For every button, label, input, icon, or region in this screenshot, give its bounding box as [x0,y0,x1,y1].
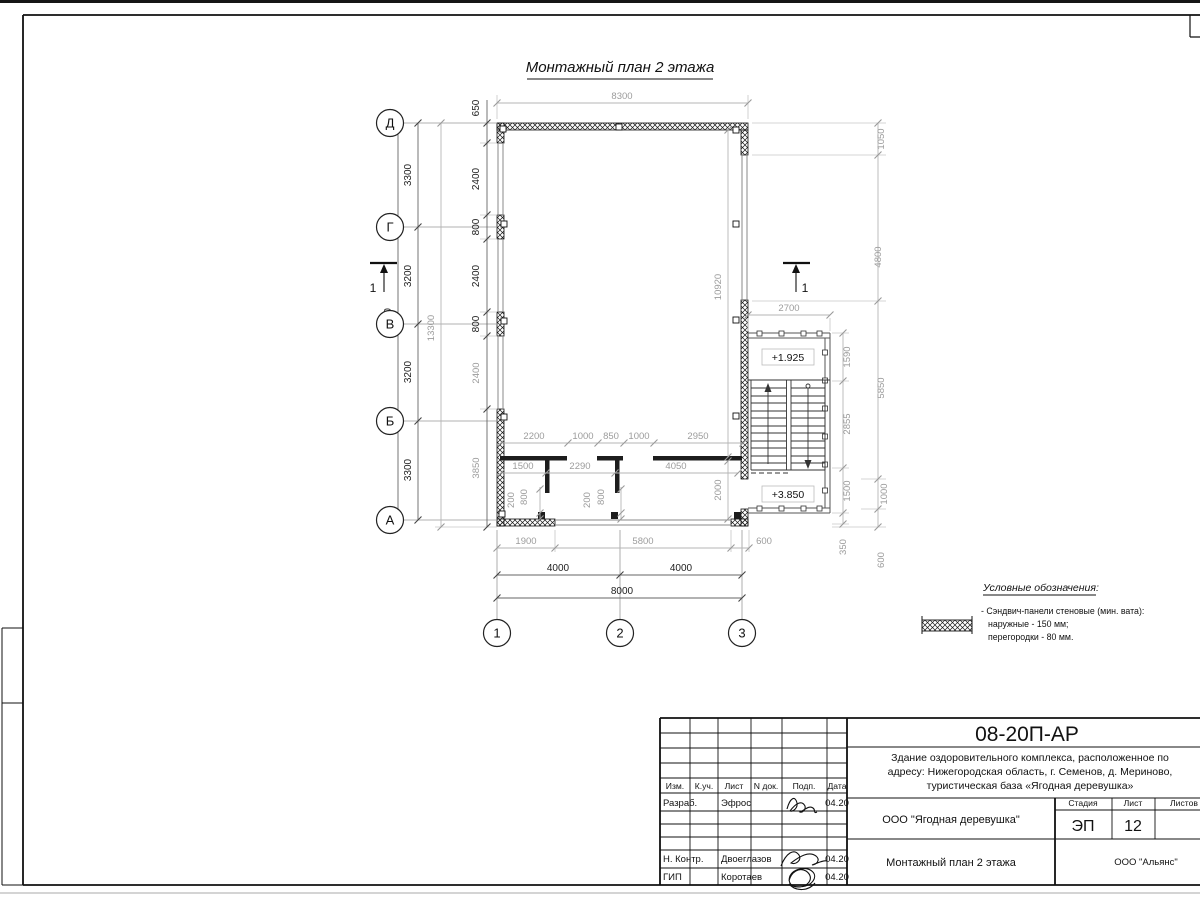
dim-label: 3300 [403,458,414,481]
plan-title: Монтажный план 2 этажа [526,59,715,79]
title-block: 08-20П-АР Здание оздоровительного компле… [660,718,1200,890]
dim-label: 8300 [611,91,632,102]
tb-col-header: Дата [827,781,846,791]
partition-v1 [545,460,550,493]
wall-east-lower [741,509,748,526]
dim-label: 600 [876,552,887,568]
dim-label: 800 [596,489,607,505]
signature-razrab [787,798,817,812]
wall-top [497,123,748,130]
dim-label: 1900 [515,536,536,547]
dim-label: 3850 [471,457,482,478]
dim-label: 1050 [876,128,887,149]
tb-row-date: 04.20 [825,798,849,809]
axis-row-label: Д [386,116,395,131]
dim-label: 800 [519,489,530,505]
dim-label: 850 [603,431,619,442]
dim-label: 4800 [873,246,884,267]
legend-line: наружные - 150 мм; [988,619,1068,629]
tb-row-role: ГИП [663,872,682,883]
section-label: 1 [370,281,377,295]
sheet-label: Лист [1124,798,1143,808]
door-jamb-3 [734,512,741,519]
dim-label: 1000 [628,431,649,442]
dim-label: 10920 [713,274,724,300]
wall-left-lower [497,409,504,526]
section-arrow-icon [792,264,800,273]
dim-label: 200 [506,492,517,508]
dim-label: 800 [471,218,482,235]
tb-row-role: Н. Контр. [663,854,703,865]
tb-row-name: Коротаев [721,872,762,883]
dim-ticks-black [395,120,746,602]
doc-number: 08-20П-АР [975,723,1079,746]
dim-label: 1500 [512,461,533,472]
dimension-lines-black [398,100,742,598]
dim-label: 2855 [842,413,853,434]
wall-bottom-left [497,519,555,526]
stairwell: +1.925 +3.850 [748,331,830,513]
dim-label: 350 [838,539,849,555]
wall-east-mid [741,300,748,479]
dim-label: 3300 [403,163,414,186]
section-arrow-icon [380,264,388,273]
dim-label: 2700 [778,303,799,314]
sheets-label: Листов [1170,798,1198,808]
dim-label: 1000 [572,431,593,442]
axis-col-label: 2 [616,626,623,641]
project-line: адресу: Нижегородская область, г. Семено… [888,766,1173,778]
dim-label: 3200 [403,264,414,287]
tb-row-date: 04.20 [825,854,849,865]
axis-row-label: В [386,317,395,332]
dim-label: 2000 [713,479,724,500]
dim-label: 5800 [632,536,653,547]
section-marks: 1 1 [370,263,810,295]
dim-label: 1000 [879,483,890,504]
sandwich-panel-symbol [922,620,972,631]
dimension-lines-gray [441,103,878,548]
plan-title-text: Монтажный план 2 этажа [526,59,715,76]
dim-label: 8000 [611,586,634,597]
dim-label: 2950 [687,431,708,442]
axis-row-label: Г [386,220,393,235]
tb-row-name: Двоеглазов [721,854,772,865]
floor-plan-walls [497,123,748,526]
project-line: Здание оздоровительного комплекса, распо… [891,752,1169,764]
legend-line: перегородки - 80 мм. [988,632,1073,642]
dim-label: 650 [471,99,482,116]
dim-label: 1590 [842,346,853,367]
window-left [498,143,503,409]
axis-col-label: 1 [493,626,500,641]
dim-label: 2400 [471,264,482,287]
legend-line: - Сэндвич-панели стеновые (мин. вата): [981,606,1144,616]
partition-v2 [615,460,620,493]
tb-row-name: Эфрос [721,798,751,809]
windows [498,143,747,525]
drawing-sheet: Монтажный план 2 этажа [0,0,1200,900]
dim-label: 600 [756,536,772,547]
sheet-title: Монтажный план 2 этажа [886,857,1017,869]
door-jamb-2 [611,512,618,519]
dim-label: 2290 [569,461,590,472]
client-name: ООО "Ягодная деревушка" [882,814,1020,826]
tb-col-header: Подп. [793,781,816,791]
tb-col-header: К.уч. [695,781,714,791]
tb-col-header: Лист [725,781,744,791]
contractor-name: ООО "Альянс" [1114,857,1178,868]
dim-label: 2400 [471,167,482,190]
dim-label: 200 [582,492,593,508]
axis-col-label: 3 [738,626,745,641]
dim-label: 2200 [523,431,544,442]
wall-east-corner [741,130,748,155]
stage-value: ЭП [1072,818,1095,835]
section-label: 1 [802,281,809,295]
dim-label: 3200 [403,360,414,383]
down-arrowhead-icon [805,460,812,469]
dim-label: 4000 [670,563,693,574]
axis-row-label: А [386,513,395,528]
stair-flights [748,380,830,473]
signature-gip [789,869,815,890]
stage-label: Стадия [1068,798,1098,808]
partition-h2 [597,456,623,461]
dimension-labels: 8300 13000 3300 3200 3200 3300 13300 650… [383,91,890,597]
project-line: туристическая база «Ягодная деревушка» [927,780,1134,792]
window-east [742,155,747,300]
dim-label: 1500 [842,480,853,501]
window-bottom [555,520,731,525]
elevation-floor: +3.850 [772,489,805,501]
tb-row-role: Разраб. [663,798,697,809]
up-arrowhead-icon [765,383,772,392]
dim-label: 13300 [426,315,437,341]
dim-label: 4050 [665,461,686,472]
dim-label: 2400 [471,362,482,383]
dim-label: 800 [471,315,482,332]
dim-label: 4000 [547,563,570,574]
partition-h1 [500,456,567,461]
elevation-mid-landing: +1.925 [772,352,805,364]
signature-nkontr [781,852,827,866]
tb-row-date: 04.20 [825,872,849,883]
legend: Условные обозначения: - Сэндвич-панели с… [922,582,1144,642]
sheet-number: 12 [1124,818,1142,835]
tb-col-header: N док. [754,781,779,791]
axis-lines [403,123,742,620]
signatures [781,798,827,889]
annex-wall-right [825,333,830,513]
dim-label: 5850 [876,377,887,398]
tb-col-header: Изм. [666,781,684,791]
axis-row-label: Б [386,414,395,429]
legend-heading: Условные обозначения: [982,582,1099,594]
